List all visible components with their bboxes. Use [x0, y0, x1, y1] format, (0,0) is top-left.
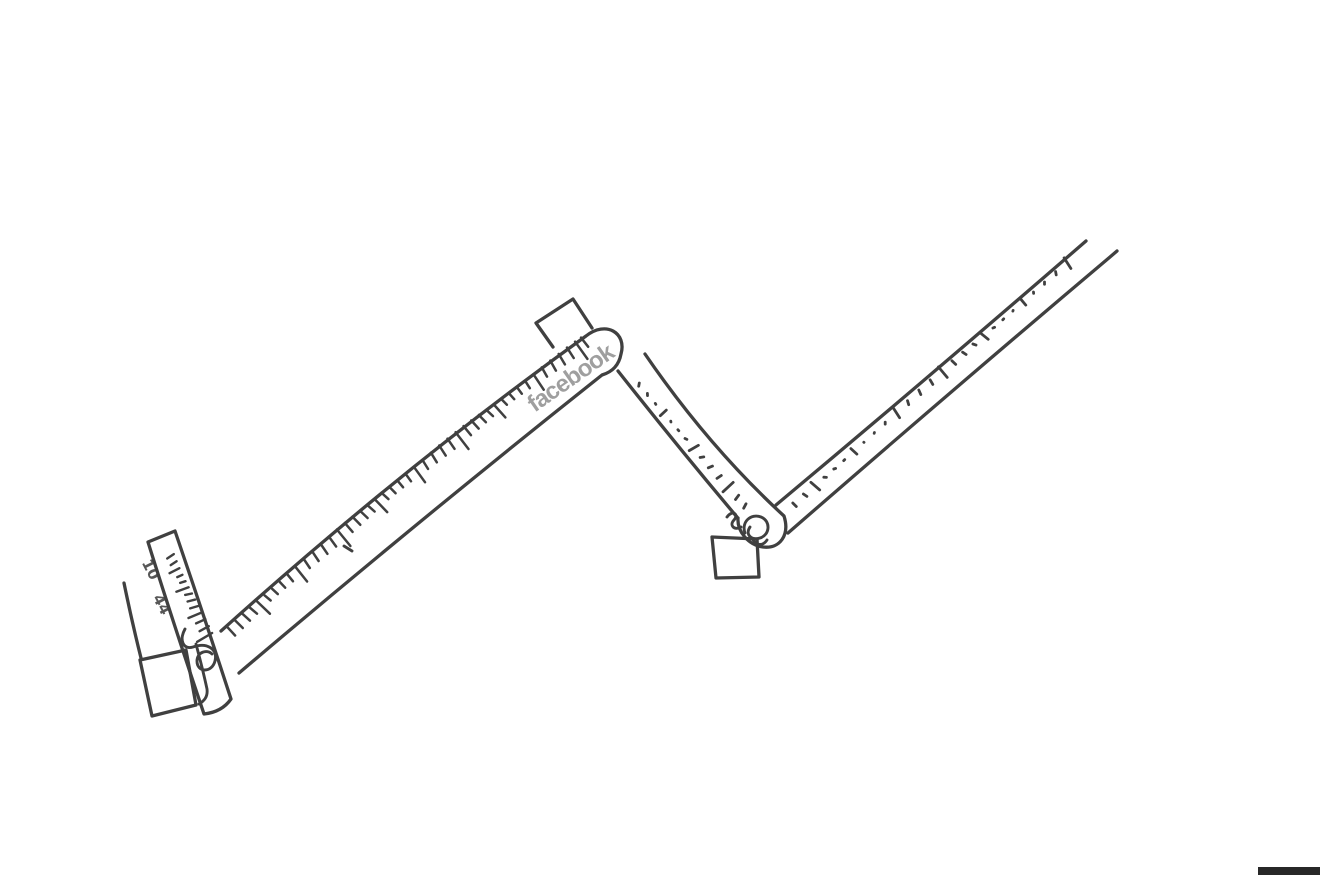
tick-mark — [375, 500, 387, 513]
tick-mark — [525, 381, 530, 388]
tick-mark — [1056, 272, 1057, 275]
tick-mark — [851, 449, 857, 455]
hinge-rivets — [182, 513, 768, 704]
tick-mark — [501, 399, 507, 405]
tick-mark — [980, 333, 988, 340]
tick-mark — [1064, 258, 1071, 269]
tick-mark — [242, 614, 250, 621]
tick-mark — [717, 476, 721, 479]
tick-mark — [793, 503, 797, 507]
tick-mark — [689, 445, 698, 450]
tick-mark — [844, 460, 845, 461]
tick-mark — [177, 575, 182, 577]
tick-mark — [414, 467, 425, 482]
tick-mark — [708, 466, 712, 468]
tick-mark — [1003, 319, 1004, 320]
tick-mark — [542, 367, 547, 376]
tick-mark — [639, 383, 640, 386]
tick-mark — [321, 544, 328, 554]
tick-mark — [744, 504, 746, 508]
ink-outlines — [124, 241, 1117, 716]
tick-mark — [257, 601, 270, 613]
tick-mark — [398, 481, 403, 487]
ruler-2-scale-ticks — [639, 383, 746, 508]
tick-mark — [167, 554, 174, 558]
tick-mark — [280, 582, 285, 588]
tick-mark — [312, 552, 318, 561]
tick-mark — [439, 446, 446, 456]
tick-mark — [185, 594, 192, 595]
tick-mark — [431, 453, 437, 463]
ruler-segment-3-rising-bottom-edge — [788, 251, 1117, 533]
tick-mark — [265, 595, 271, 600]
tick-mark — [189, 612, 203, 618]
tick-mark — [973, 344, 976, 345]
tick-mark — [235, 620, 243, 628]
tick-mark — [360, 511, 368, 518]
tick-mark — [963, 352, 967, 354]
ruler-1-scale-ticks — [227, 338, 588, 636]
tick-mark — [471, 420, 479, 428]
tick-mark — [390, 488, 395, 494]
tick-mark — [329, 537, 336, 547]
tick-mark — [919, 390, 921, 395]
tick-mark — [304, 560, 310, 569]
tick-mark — [834, 468, 836, 469]
tick-mark — [894, 408, 900, 418]
tick-mark — [448, 439, 455, 449]
left-hinge-tab-extension-edge — [124, 583, 141, 658]
tick-mark — [464, 426, 472, 435]
tick-mark — [345, 523, 353, 532]
tick-mark — [368, 505, 375, 511]
tick-mark — [938, 367, 947, 378]
tick-mark — [952, 361, 956, 365]
tick-mark — [288, 575, 293, 582]
tick-mark — [337, 530, 351, 547]
ruler-segment-3-rising-top-edge — [776, 241, 1086, 505]
tick-mark — [227, 627, 235, 636]
tick-mark — [353, 517, 361, 525]
tick-mark — [700, 457, 704, 458]
ruler-3-scale-ticks — [793, 258, 1071, 507]
scanned-sketch-page: facebook 10 44 — [0, 0, 1320, 875]
tick-mark — [171, 561, 177, 565]
tick-mark — [723, 482, 733, 491]
tick-mark — [406, 474, 411, 481]
tick-mark — [678, 430, 679, 431]
folding-ruler-zigzag-sketch: facebook 10 44 — [0, 0, 1320, 875]
ruler-segment-2-falling-left-edge — [618, 371, 737, 517]
tick-mark — [190, 606, 198, 609]
tick-mark — [550, 361, 556, 371]
tick-mark — [494, 405, 506, 418]
tick-mark — [993, 327, 995, 328]
tick-mark — [930, 380, 933, 385]
tick-mark — [517, 387, 522, 393]
tick-mark — [1020, 299, 1025, 305]
tick-mark — [908, 401, 909, 405]
scan-artifact-bar — [1258, 867, 1320, 875]
tick-mark — [486, 410, 493, 416]
tick-mark — [296, 567, 307, 581]
tick-mark — [660, 410, 666, 416]
tick-mark — [250, 608, 257, 614]
tick-mark — [811, 482, 820, 490]
tick-mark — [509, 393, 514, 399]
end-segment-strip — [148, 531, 231, 714]
left-hinge-tab — [140, 650, 196, 716]
tick-mark — [176, 587, 188, 591]
tick-mark — [479, 415, 486, 422]
tick-mark — [170, 568, 180, 573]
tick-mark — [803, 494, 807, 496]
tick-mark — [383, 494, 389, 499]
tick-mark — [456, 432, 469, 449]
tick-mark — [423, 460, 429, 469]
tick-mark — [180, 581, 185, 583]
tick-mark — [655, 403, 656, 404]
tick-mark — [188, 600, 196, 602]
tick-mark — [685, 439, 687, 440]
tick-mark — [272, 589, 278, 594]
tick-mark — [736, 495, 739, 499]
